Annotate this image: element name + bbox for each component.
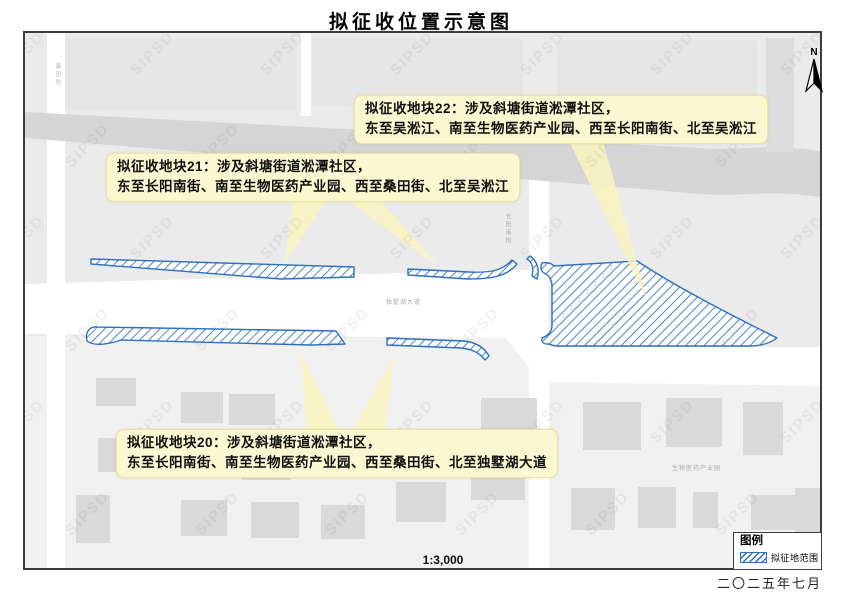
date-label: 二〇二五年七月 [690,573,822,592]
callout-plot-22: 拟征收地块22：涉及斜塘街道淞潭社区， 东至吴淞江、南至生物医药产业园、西至长阳… [354,95,768,144]
callout-plot-22-line2: 东至吴淞江、南至生物医药产业园、西至长阳南街、北至吴淞江 [365,119,757,139]
callout-plot-20-line1: 拟征收地块20：涉及斜塘街道淞潭社区， [127,433,547,453]
page-root: { "title": "拟征收位置示意图", "date_label": "二〇… [0,0,842,595]
callout-plot-21-line1: 拟征收地块21：涉及斜塘街道淞潭社区， [117,157,509,177]
callout-plot-21: 拟征收地块21：涉及斜塘街道淞潭社区， 东至长阳南街、南至生物医药产业园、西至桑… [106,153,520,202]
callout-plot-21-line2: 东至长阳南街、南至生物医药产业园、西至桑田街、北至吴淞江 [117,177,509,197]
scale-label: 1:3,000 [398,553,488,567]
page-title: 拟征收位置示意图 [0,7,842,34]
legend: 图例 拟征地范围 [733,532,822,570]
callout-plot-20-line2: 东至长阳南街、南至生物医药产业园、西至桑田街、北至独墅湖大道 [127,453,547,473]
legend-item-label: 拟征地范围 [771,551,819,564]
north-arrow-label: N [810,47,817,58]
legend-item: 拟征地范围 [740,551,816,564]
north-arrow-icon: N [799,44,829,96]
hatch-swatch-icon [740,552,767,563]
callout-plot-20: 拟征收地块20：涉及斜塘街道淞潭社区， 东至长阳南街、南至生物医药产业园、西至桑… [116,429,558,478]
callout-plot-22-line1: 拟征收地块22：涉及斜塘街道淞潭社区， [365,99,757,119]
legend-title: 图例 [740,535,816,548]
